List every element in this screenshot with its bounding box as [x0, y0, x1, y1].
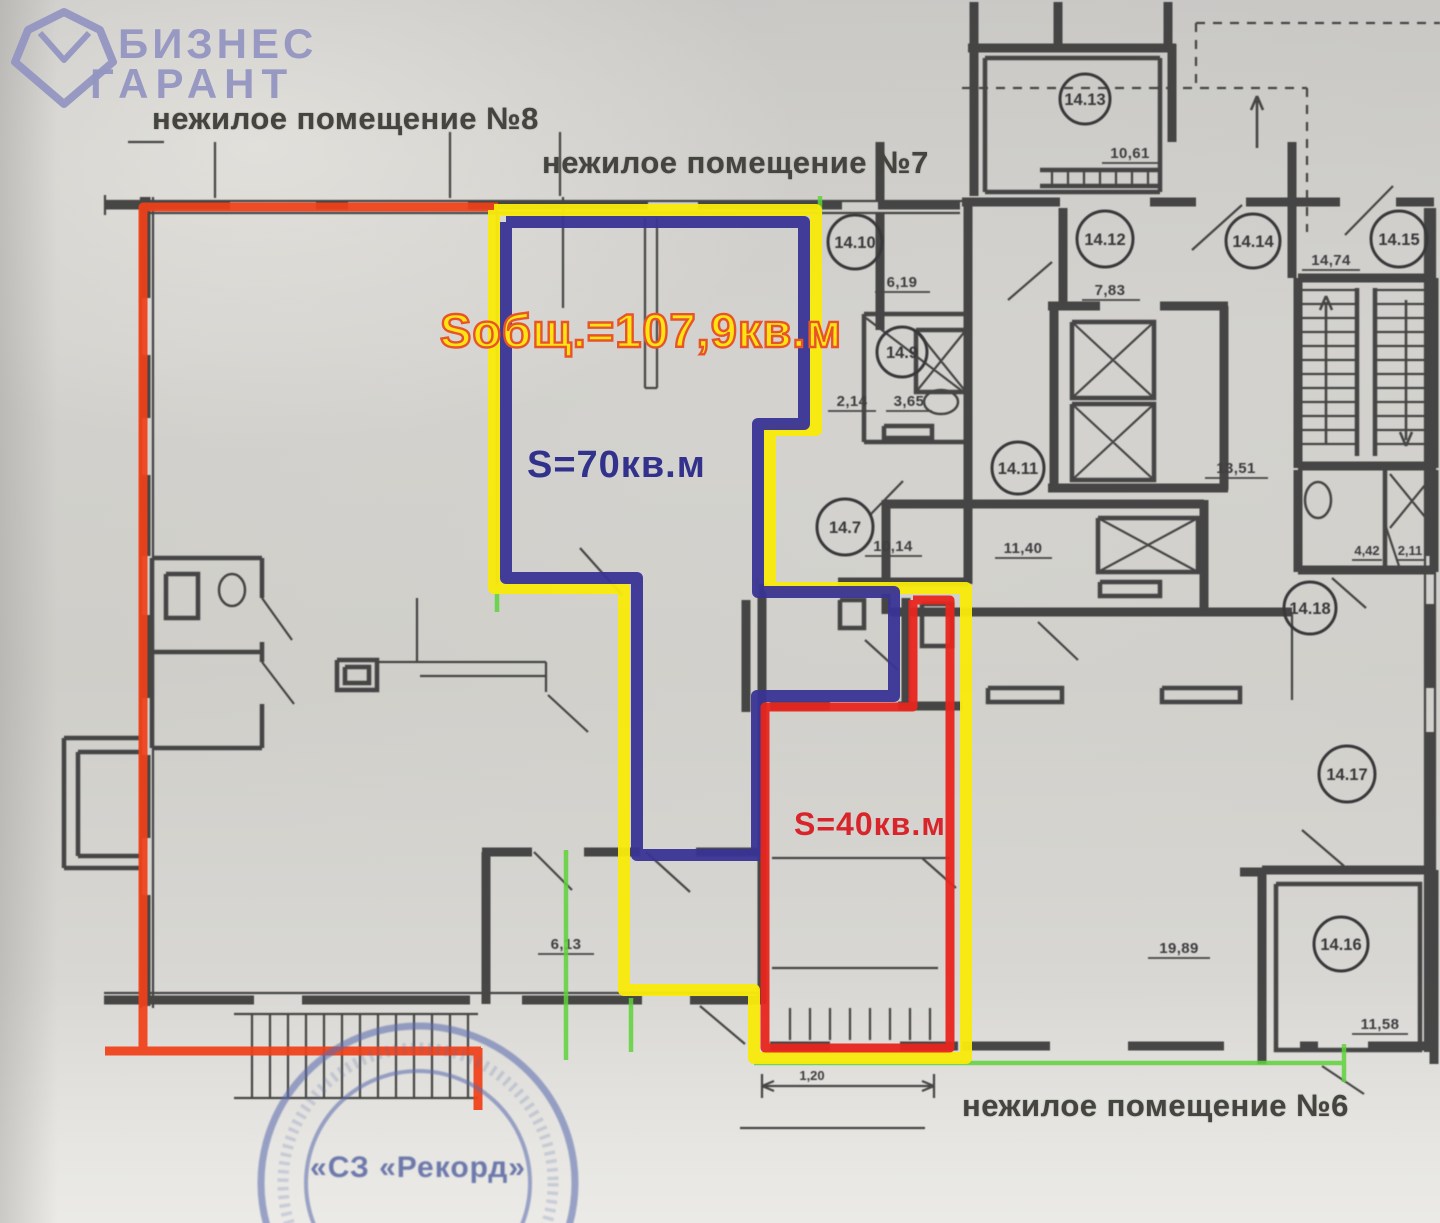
toilet-fixture-2 — [1305, 482, 1331, 518]
room-number-label: 14.7 — [829, 519, 861, 537]
dimension-label: 11,58 — [1361, 1016, 1400, 1033]
premise6-label: нежилое помещение №6 — [962, 1088, 1349, 1124]
room-number-label: 14.9 — [886, 344, 918, 362]
room-number-label: 14.15 — [1378, 231, 1419, 249]
premise7-label: нежилое помещение №7 — [542, 145, 929, 181]
room-number-label: 14.11 — [998, 460, 1038, 478]
room-number-label: 14.17 — [1326, 766, 1367, 784]
dimension-label: 10,14 — [873, 538, 913, 555]
room-number-label: 14.16 — [1320, 936, 1361, 954]
direction-arrows — [1251, 96, 1412, 446]
dimension-label: 19,89 — [1159, 940, 1199, 957]
total-area-annotation: Sобщ.=107,9кв.м — [440, 303, 842, 358]
dimension-label: 1,20 — [799, 1068, 824, 1083]
dimension-label: 14,74 — [1311, 252, 1351, 269]
room-number-label: 14.13 — [1064, 91, 1105, 109]
dimension-label: 6,19 — [887, 274, 918, 291]
room-number-label: 14.14 — [1232, 233, 1274, 251]
dimension-label: 2,11 — [1398, 543, 1423, 558]
dimension-label: 7,83 — [1095, 282, 1126, 299]
room-number-label: 14.10 — [834, 234, 875, 252]
dimension-label: 2,14 — [837, 393, 868, 410]
room-number-label: 14.12 — [1084, 231, 1125, 249]
area40-annotation: S=40кв.м — [794, 806, 946, 843]
dimension-label: 3,65 — [894, 393, 925, 410]
dimension-label: 11,40 — [1004, 540, 1043, 557]
premise8-label: нежилое помещение №8 — [152, 101, 539, 137]
dimension-underlines — [538, 163, 1424, 1034]
dimension-label: 10,61 — [1110, 145, 1150, 162]
room-number-label: 14.18 — [1289, 600, 1330, 618]
area70-annotation: S=70кв.м — [527, 444, 706, 487]
stamp-center-text: «СЗ «Рекорд» — [310, 1151, 526, 1184]
floorplan-scan: 14.13 14.10 14.12 14.14 14.15 14.9 14.11… — [0, 0, 1440, 1223]
sink-fixture — [219, 574, 245, 606]
dimension-label: 13,51 — [1216, 460, 1256, 477]
notary-stamp: «СЗ «Рекорд» — [261, 1026, 575, 1223]
floorplan-canvas: 14.13 14.10 14.12 14.14 14.15 14.9 14.11… — [0, 0, 1440, 1223]
dimension-label: 4,42 — [1354, 543, 1379, 558]
stamp-inner-ring — [306, 1071, 530, 1223]
